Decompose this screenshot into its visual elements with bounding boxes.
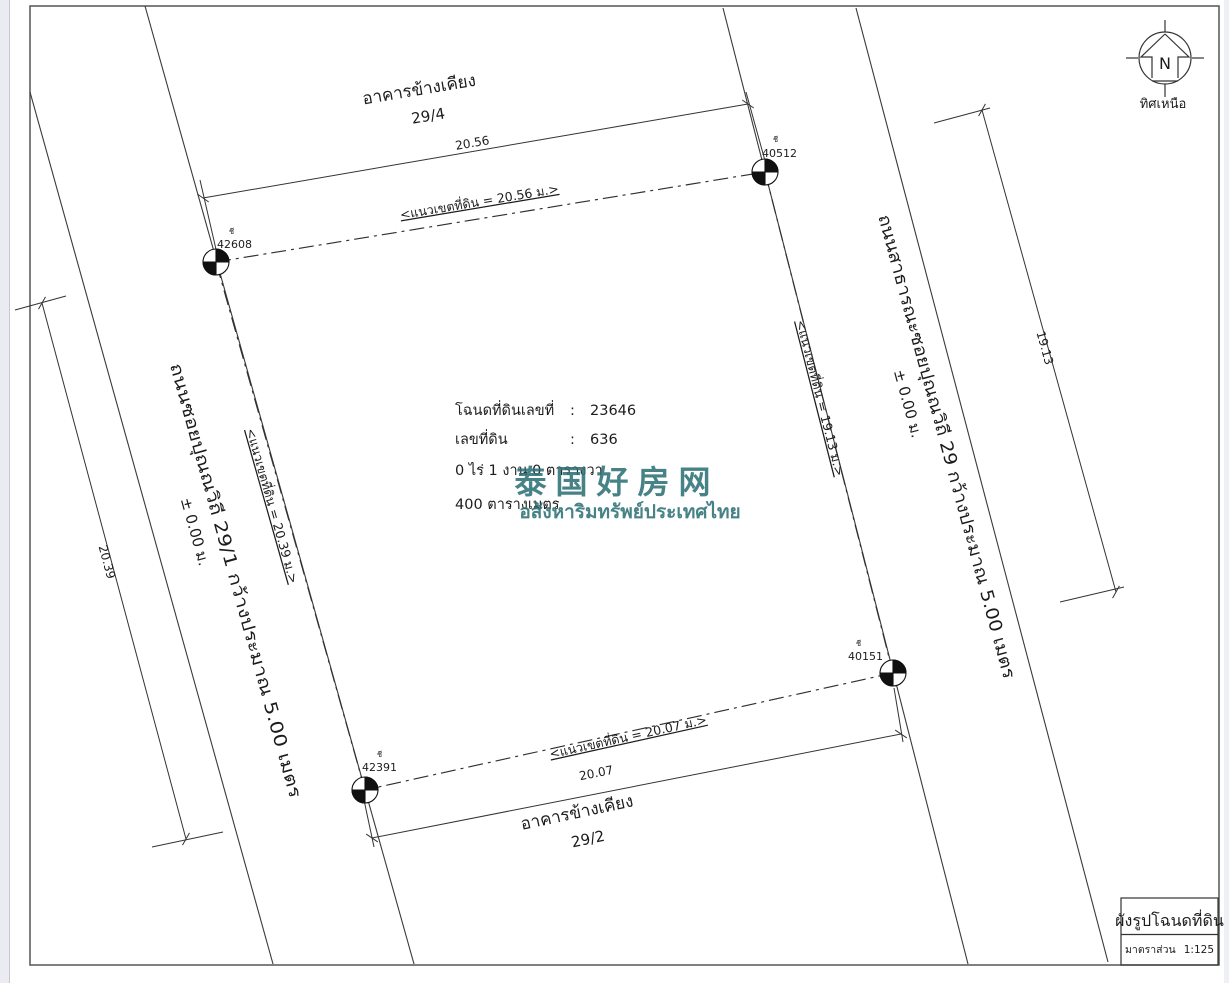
survey-plan-canvas: 20.56 20.07 20.39 19.13 <แนวเขตที่ดิน = … [0, 0, 1229, 983]
compass-label: ทิศเหนือ [1140, 96, 1187, 112]
watermark-chinese: 泰国好房网 [514, 463, 719, 501]
marker-nw-prefix: ชี [229, 227, 234, 236]
marker-se-prefix: ชี [856, 639, 861, 648]
marker-ne-id: 40512 [762, 147, 797, 160]
marker-se-id: 40151 [848, 650, 883, 663]
scale-label: มาตราส่วน [1125, 944, 1176, 956]
viewer-left-strip [0, 0, 9, 983]
parcel-number-value: 636 [590, 432, 618, 448]
deed-number-label: โฉนดที่ดินเลขที่ [455, 400, 554, 419]
watermark-thai: อสังหาริมทรัพย์ประเทศไทย [519, 500, 740, 523]
marker-nw-id: 42608 [217, 238, 252, 251]
marker-sw-id: 42391 [362, 761, 397, 774]
drawing-title: ผังรูปโฉนดที่ดิน [1115, 909, 1224, 931]
survey-marker-sw [352, 777, 378, 803]
survey-marker-se [880, 660, 906, 686]
parcel-number-label: เลขที่ดิน [455, 429, 508, 448]
marker-ne-prefix: ชี [773, 135, 778, 144]
marker-sw-prefix: ชี [377, 750, 382, 759]
watermark: 泰国好房网 อสังหาริมทรัพย์ประเทศไทย [514, 463, 740, 523]
deed-number-value: 23646 [590, 403, 636, 419]
deed-number-sep: : [570, 403, 575, 419]
scale-value: 1:125 [1184, 944, 1214, 956]
compass-letter: N [1159, 54, 1171, 73]
survey-marker-ne [752, 159, 778, 185]
viewer-right-strip [1224, 0, 1229, 983]
survey-marker-nw [203, 249, 229, 275]
parcel-number-sep: : [570, 432, 575, 448]
